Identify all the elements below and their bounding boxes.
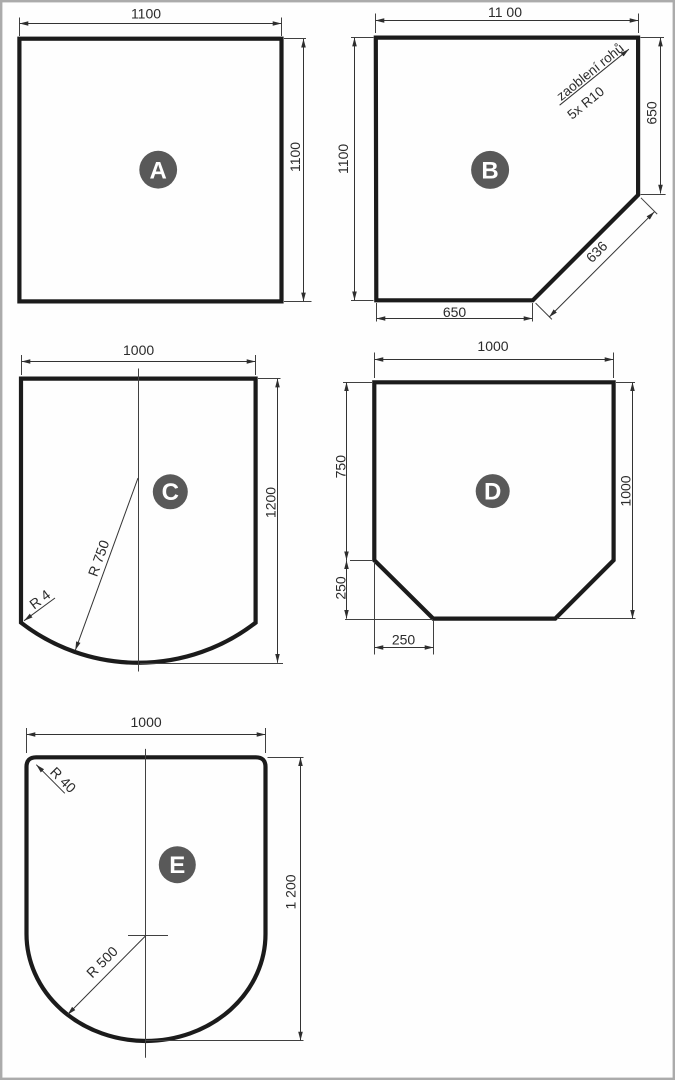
svg-text:C: C (162, 479, 179, 506)
svg-text:250: 250 (332, 576, 348, 600)
svg-text:1 200: 1 200 (282, 874, 298, 909)
svg-text:1100: 1100 (287, 142, 303, 172)
svg-text:750: 750 (332, 455, 348, 479)
svg-text:A: A (150, 157, 167, 184)
svg-text:11 00: 11 00 (488, 4, 522, 20)
svg-text:1000: 1000 (477, 338, 508, 354)
svg-text:B: B (481, 158, 498, 185)
svg-text:1200: 1200 (262, 487, 278, 518)
svg-text:1000: 1000 (618, 475, 634, 506)
svg-text:650: 650 (443, 304, 467, 320)
svg-text:650: 650 (644, 101, 660, 125)
svg-text:E: E (169, 852, 185, 879)
svg-text:D: D (484, 479, 501, 506)
svg-text:1100: 1100 (335, 144, 351, 174)
svg-text:1100: 1100 (131, 6, 161, 22)
svg-text:1000: 1000 (131, 714, 162, 730)
svg-text:1000: 1000 (123, 342, 154, 358)
svg-text:250: 250 (392, 631, 416, 647)
